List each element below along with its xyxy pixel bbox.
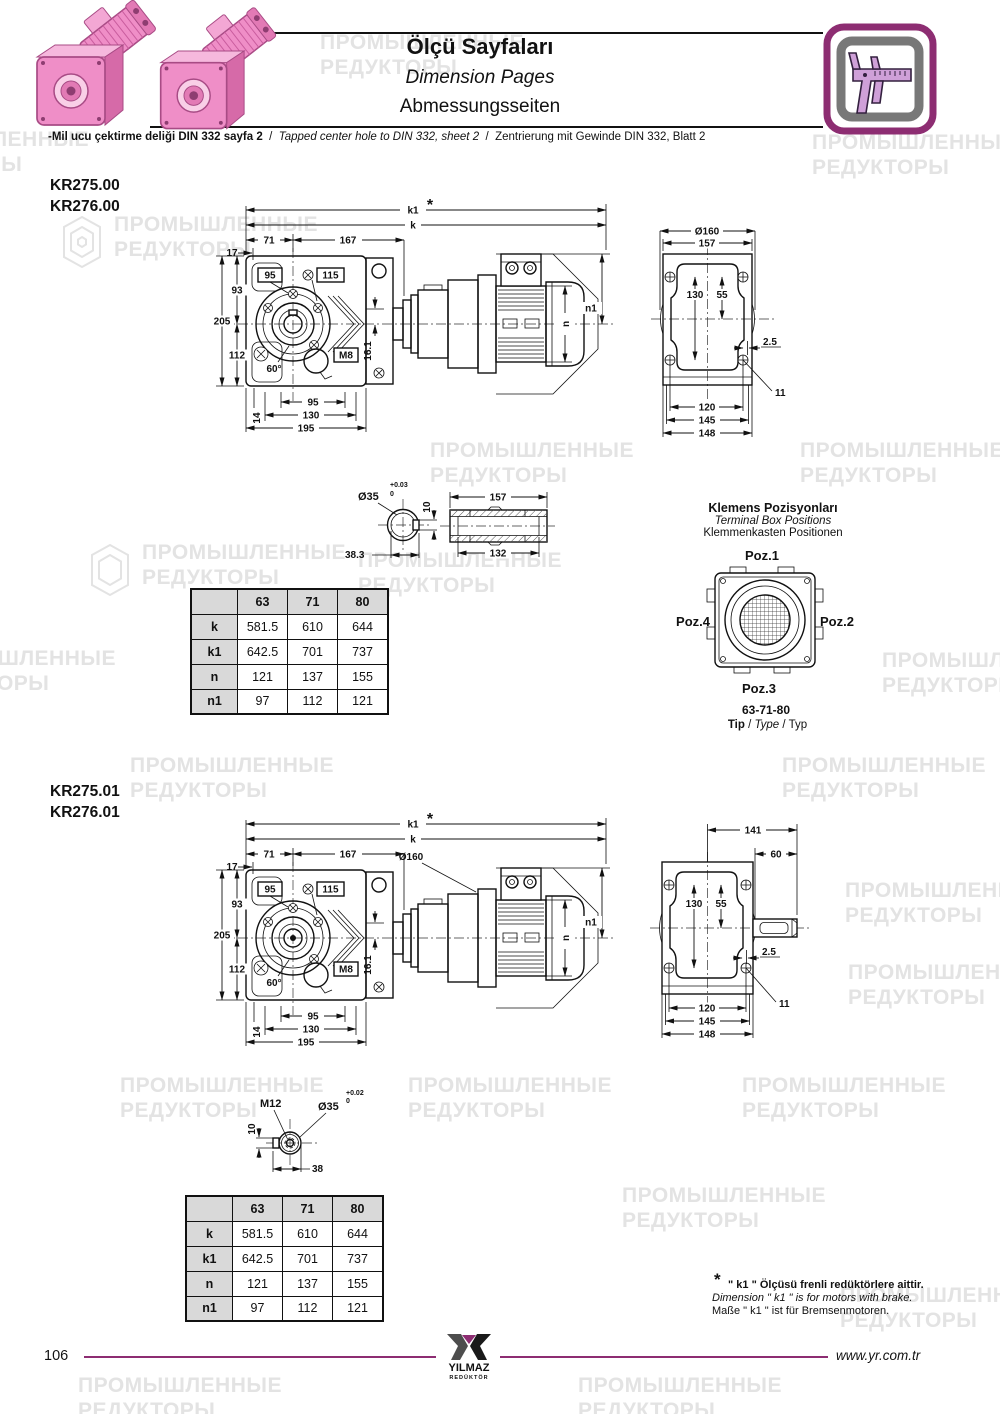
terminal-box-motor-drawing (700, 563, 830, 675)
dim-m8-box: M8 (339, 351, 353, 362)
dim-k1-star: * (427, 197, 434, 214)
dim-148: 148 (699, 429, 716, 440)
dim-120: 120 (699, 1004, 716, 1015)
solid-shaft-detail-2: M12 Ø35 +0.02 0 10 38 (240, 1075, 440, 1180)
table-row: n 121 137 155 (186, 1271, 383, 1296)
dim-16-1: 16.1 (363, 341, 374, 361)
dim-145: 145 (699, 416, 716, 427)
watermark: ПРОМЫШЛЕННЫЕРЕДУКТОРЫ (742, 1073, 946, 1123)
dim-17: 17 (226, 862, 238, 873)
dim-55: 55 (715, 899, 727, 910)
poz-2-label: Poz.2 (820, 614, 854, 629)
table-row: k1 642.5 701 737 (186, 1246, 383, 1271)
terminal-box-titles: Klemens Pozisyonları Terminal Box Positi… (688, 501, 858, 539)
logo-brand-sub: REDÜKTÖR (449, 1374, 488, 1381)
product-image-gearmotors (25, 6, 275, 132)
dim-k1-star: * (427, 811, 434, 828)
watermark: ПРОМЫШЛЕННЫЕРЕДУКТОРЫ (848, 960, 1000, 1010)
poz-4-label: Poz.4 (655, 614, 710, 629)
dim-m8-box: M8 (339, 965, 353, 976)
dim-120: 120 (699, 403, 716, 414)
poz-1-label: Poz.1 (745, 548, 779, 563)
hexagon-watermark-icon (60, 212, 104, 282)
dim-130-bottom: 130 (303, 411, 320, 422)
shaft-dia: Ø35 (318, 1101, 339, 1113)
dim-167: 167 (340, 236, 357, 247)
page-number: 106 (44, 1348, 68, 1364)
front-drawing-kr275-01: k1 * k 71 167 Ø160 17 205 93 112 95 115 … (208, 810, 638, 1060)
watermark: ПРОМЫШЛЕННЫЕРЕДУКТОРЫ (782, 753, 986, 803)
website-url: www.yr.com.tr (836, 1348, 920, 1363)
table-row: k 581.5 610 644 (191, 614, 388, 639)
shaft-dia: Ø35 (358, 491, 379, 503)
dim-16-1: 16.1 (363, 955, 374, 975)
model-codes-2: KR275.01 KR276.01 (50, 781, 120, 823)
dim-148: 148 (699, 1030, 716, 1041)
footnote-turkish: " k1 " Ölçüsü frenli redüktörlere aittir… (728, 1279, 924, 1291)
dim-n: n (561, 321, 572, 327)
poz-3-label: Poz.3 (742, 681, 776, 696)
dim-60: 60 (770, 850, 782, 861)
dim-195-bottom: 195 (298, 424, 315, 435)
watermark: ПРОМЫШЛЕННЫЕРЕДУКТОРЫ (622, 1183, 826, 1233)
dim-2-5: 2.5 (763, 337, 777, 348)
shaft-38: 38 (312, 1164, 324, 1175)
footnote-english: Dimension " k1 " is for motors with brak… (712, 1292, 912, 1304)
caliper-icon (823, 23, 937, 135)
dim-dia160-flange: Ø160 (399, 852, 424, 863)
dim-130-bottom: 130 (303, 1025, 320, 1036)
type-codes: 63-71-80 (721, 703, 811, 717)
dim-dia160: Ø160 (695, 227, 720, 238)
dim-205: 205 (214, 317, 231, 328)
shaft-m12: M12 (260, 1098, 281, 1110)
dim-115-box: 115 (322, 271, 339, 282)
title-english: Dimension Pages (330, 67, 630, 89)
catalog-page: ПРОМЫШЛЕННЫЕРЕДУКТОРЫ ПРОМЫШЛЕННЫЕРЕДУКТ… (0, 0, 1000, 1414)
hexagon-watermark-icon (88, 540, 132, 610)
front-drawing-kr275-00: k1 * k 71 167 17 205 93 112 95 115 M8 60… (208, 196, 638, 446)
dim-167: 167 (340, 850, 357, 861)
dimension-table-1: 63 71 80 k 581.5 610 644 k1 642.5 701 73… (190, 588, 389, 715)
dim-95-box: 95 (264, 885, 276, 896)
table-row: n1 97 112 121 (191, 689, 388, 714)
shaft-key-10: 10 (422, 501, 433, 513)
footer-rule-left (84, 1356, 436, 1358)
dim-130: 130 (687, 290, 704, 301)
watermark: ПРОМЫШЛЕННЫЕРЕДУКТОРЫ (800, 438, 1000, 488)
rear-view-kr275-00: Ø160 157 130 55 2.5 11 120 145 148 (645, 215, 815, 445)
hollow-shaft-detail-1: Ø35 +0.03 0 10 38.3 157 132 (340, 465, 560, 565)
dim-17: 17 (226, 248, 238, 259)
yilmaz-reduktor-logo: YILMAZ REDÜKTÖR (440, 1332, 498, 1382)
table-row: k 581.5 610 644 (186, 1221, 383, 1246)
shaft-tol-up: +0.03 (390, 482, 408, 489)
dim-95-bottom: 95 (307, 398, 319, 409)
dim-145: 145 (699, 1017, 716, 1028)
watermark: ПРОМЫШЛЕННЫЕРЕДУКТОРЫ (0, 646, 116, 696)
bushing-157: 157 (490, 493, 507, 504)
shaft-tol-up: +0.02 (346, 1090, 364, 1097)
dim-14: 14 (252, 412, 263, 424)
dim-112: 112 (229, 965, 246, 976)
shaft-tol-dn: 0 (390, 491, 394, 498)
dim-157: 157 (699, 239, 716, 250)
title-turkish: Ölçü Sayfaları (330, 34, 630, 60)
dim-95-box: 95 (264, 271, 276, 282)
dim-2-5: 2.5 (762, 947, 776, 958)
rear-view-kr275-01: 141 60 130 55 2.5 11 120 145 148 (640, 812, 830, 1047)
model-codes-1: KR275.00 KR276.00 (50, 175, 120, 217)
table-row: n1 97 112 121 (186, 1296, 383, 1321)
logo-brand: YILMAZ (449, 1362, 490, 1374)
table-row: k1 642.5 701 737 (191, 639, 388, 664)
din-note: -Mil ucu çektirme deliği DIN 332 sayfa 2… (48, 131, 705, 143)
dim-n1: n1 (585, 918, 597, 929)
dim-k1: k1 (407, 206, 419, 217)
dim-71: 71 (263, 236, 275, 247)
dim-205: 205 (214, 931, 231, 942)
bushing-132: 132 (490, 549, 507, 560)
dim-11: 11 (779, 999, 790, 1010)
dim-n1: n1 (585, 304, 597, 315)
type-label-line: Tip / Type / Typ (705, 719, 830, 731)
dim-115-box: 115 (322, 885, 339, 896)
dim-195-bottom: 195 (298, 1038, 315, 1049)
shaft-key-10: 10 (247, 1123, 258, 1135)
dim-141: 141 (745, 826, 762, 837)
footer-rule-right (500, 1356, 828, 1358)
shaft-tol-dn: 0 (346, 1098, 350, 1105)
dim-14: 14 (252, 1026, 263, 1038)
watermark: ПРОМЫШЛЕННЫЕРЕДУКТОРЫ (882, 648, 1000, 698)
dim-112: 112 (229, 351, 246, 362)
dim-60deg: 60° (266, 978, 281, 989)
dim-k: k (410, 835, 416, 846)
dim-k: k (410, 221, 416, 232)
dim-95-bottom: 95 (307, 1012, 319, 1023)
watermark: ПРОМЫШЛЕННЫЕРЕДУКТОРЫ (578, 1373, 782, 1414)
page-title: Ölçü Sayfaları Dimension Pages Abmessung… (330, 34, 630, 118)
watermark: ПРОМЫШЛЕННЫЕРЕДУКТОРЫ (130, 753, 334, 803)
dim-93: 93 (231, 286, 243, 297)
dim-93: 93 (231, 900, 243, 911)
dim-k1: k1 (407, 820, 419, 831)
dim-60deg: 60° (266, 364, 281, 375)
dim-130: 130 (686, 899, 703, 910)
watermark: ПРОМЫШЛЕННЫЕРЕДУКТОРЫ (812, 130, 1000, 180)
shaft-38-3: 38.3 (345, 550, 365, 561)
table-row: n 121 137 155 (191, 664, 388, 689)
dim-n: n (561, 935, 572, 941)
dim-11: 11 (775, 388, 786, 399)
dim-55: 55 (716, 290, 728, 301)
dim-71: 71 (263, 850, 275, 861)
title-german: Abmessungsseiten (330, 96, 630, 118)
footnote-star: * (714, 1270, 721, 1290)
dimension-table-2: 63 71 80 k 581.5 610 644 k1 642.5 701 73… (185, 1195, 384, 1322)
watermark: ПРОМЫШЛЕННЫЕРЕДУКТОРЫ (78, 1373, 282, 1414)
watermark: ПРОМЫШЛЕННЫЕРЕДУКТОРЫ (845, 878, 1000, 928)
footnote-german: Maße " k1 " ist für Bremsenmotoren. (712, 1305, 889, 1317)
